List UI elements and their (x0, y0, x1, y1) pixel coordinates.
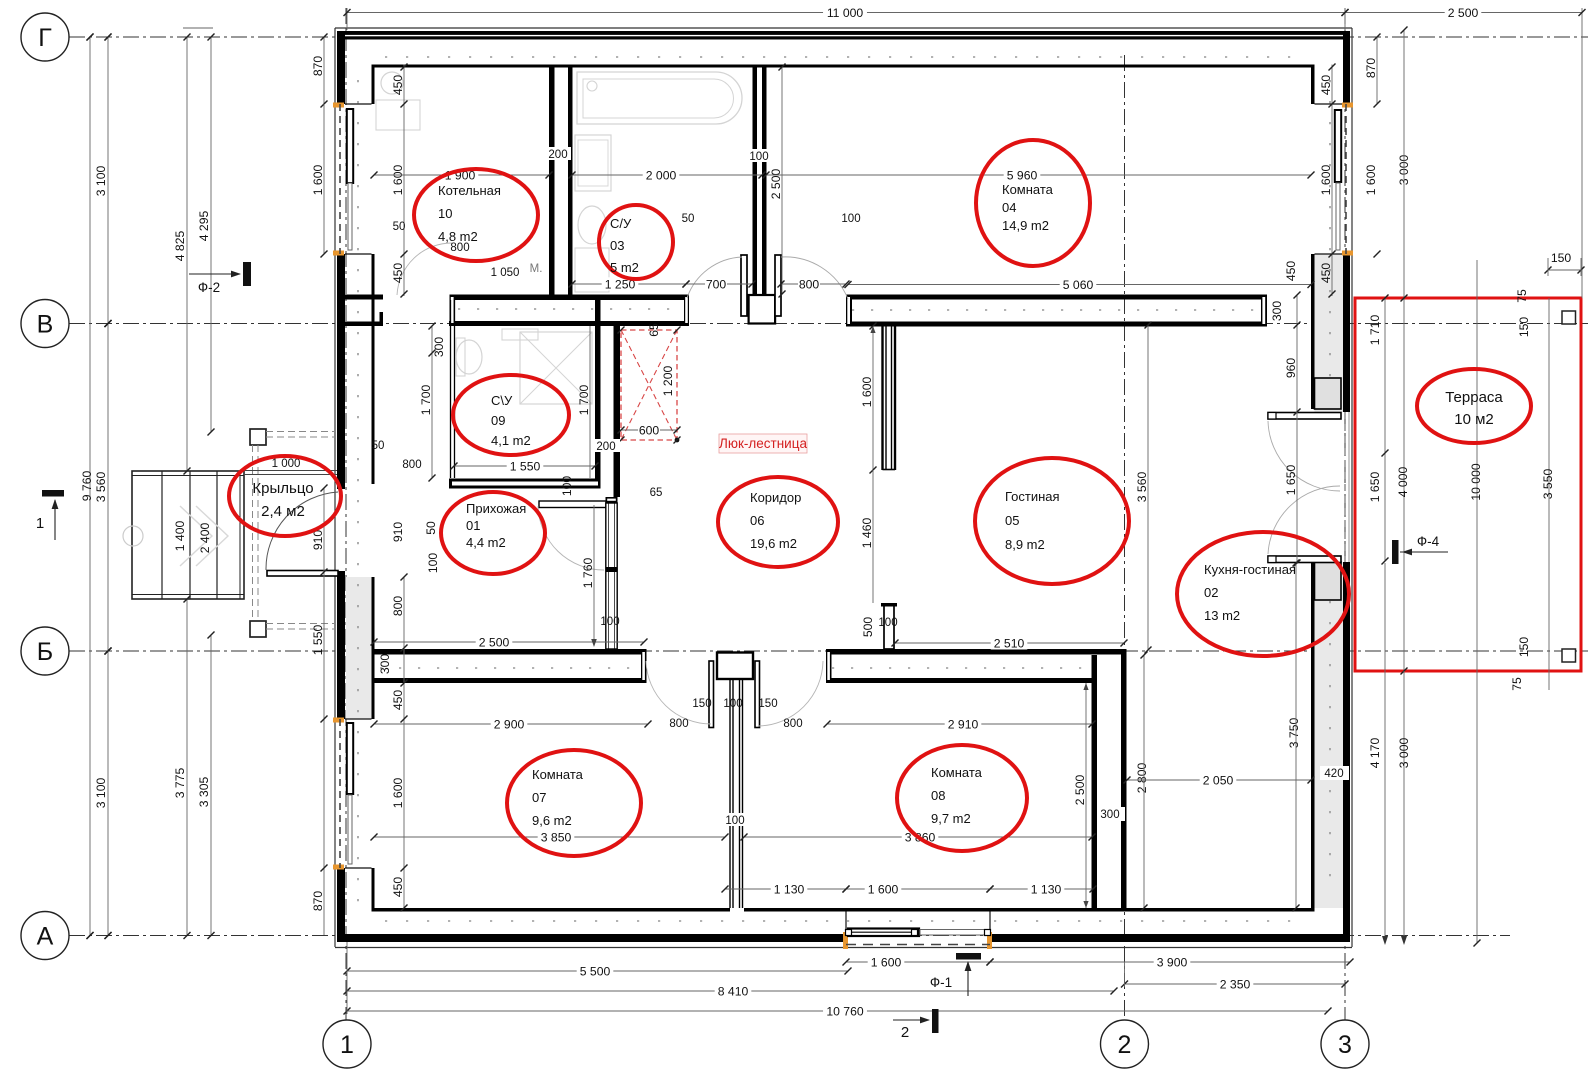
svg-text:3 850: 3 850 (541, 831, 572, 845)
svg-text:Гостиная: Гостиная (1005, 489, 1060, 504)
svg-text:02: 02 (1204, 585, 1218, 600)
svg-text:С\У: С\У (491, 393, 513, 408)
svg-text:М.: М. (530, 263, 543, 275)
svg-text:Терраса: Терраса (1445, 389, 1503, 406)
svg-text:2 500: 2 500 (1073, 775, 1087, 806)
svg-text:75: 75 (1515, 289, 1529, 303)
svg-text:06: 06 (750, 513, 764, 528)
svg-text:5 500: 5 500 (580, 965, 611, 979)
svg-text:100: 100 (841, 213, 860, 225)
svg-text:100: 100 (878, 617, 897, 629)
svg-text:13 m2: 13 m2 (1204, 608, 1240, 623)
svg-text:800: 800 (783, 718, 802, 730)
svg-text:3 560: 3 560 (94, 472, 108, 503)
svg-text:Прихожая: Прихожая (466, 501, 526, 516)
svg-text:Кухня-гостиная: Кухня-гостиная (1204, 562, 1296, 577)
svg-text:2 800: 2 800 (1135, 763, 1149, 794)
svg-text:1 600: 1 600 (871, 956, 902, 970)
svg-text:14,9 m2: 14,9 m2 (1002, 218, 1049, 233)
svg-text:Г: Г (38, 24, 52, 52)
svg-text:1 000: 1 000 (272, 458, 301, 470)
svg-text:50: 50 (424, 521, 438, 535)
svg-text:2 900: 2 900 (494, 718, 525, 732)
svg-text:5 960: 5 960 (1007, 169, 1038, 183)
svg-text:1 650: 1 650 (1284, 465, 1298, 496)
svg-text:300: 300 (1100, 809, 1119, 821)
svg-text:150: 150 (758, 698, 777, 710)
svg-text:100: 100 (426, 553, 440, 574)
svg-text:2: 2 (1118, 1031, 1132, 1059)
svg-text:07: 07 (532, 790, 546, 805)
svg-text:5 060: 5 060 (1063, 278, 1094, 292)
svg-text:150: 150 (692, 698, 711, 710)
svg-text:4,8 m2: 4,8 m2 (438, 229, 478, 244)
svg-text:2 500: 2 500 (1448, 6, 1479, 20)
svg-text:910: 910 (391, 522, 405, 543)
svg-text:Котельная: Котельная (438, 183, 501, 198)
svg-text:10 000: 10 000 (1469, 463, 1483, 500)
svg-text:450: 450 (1319, 263, 1333, 284)
svg-text:4 000: 4 000 (1396, 467, 1410, 498)
svg-text:03: 03 (610, 238, 624, 253)
svg-text:1 600: 1 600 (860, 377, 874, 408)
svg-text:870: 870 (311, 56, 325, 77)
svg-text:870: 870 (311, 891, 325, 912)
svg-text:150: 150 (1517, 317, 1531, 338)
svg-text:08: 08 (931, 788, 945, 803)
svg-text:Комната: Комната (1002, 182, 1054, 197)
svg-text:1 600: 1 600 (868, 883, 899, 897)
svg-text:8 410: 8 410 (718, 985, 749, 999)
svg-text:9,7 m2: 9,7 m2 (931, 811, 971, 826)
svg-text:1 600: 1 600 (391, 165, 405, 196)
svg-text:8,9 m2: 8,9 m2 (1005, 537, 1045, 552)
svg-text:1 760: 1 760 (581, 558, 595, 589)
svg-text:100: 100 (723, 698, 742, 710)
svg-text:100: 100 (749, 151, 768, 163)
svg-text:100: 100 (725, 815, 744, 827)
svg-text:4 170: 4 170 (1368, 738, 1382, 769)
svg-text:2: 2 (901, 1024, 909, 1041)
svg-text:4,4 m2: 4,4 m2 (466, 535, 506, 550)
svg-text:1 550: 1 550 (510, 460, 541, 474)
svg-text:1 130: 1 130 (774, 883, 805, 897)
svg-text:50: 50 (372, 440, 385, 452)
svg-text:150: 150 (1517, 637, 1531, 658)
svg-text:450: 450 (391, 263, 405, 284)
svg-text:450: 450 (391, 690, 405, 711)
svg-text:11 000: 11 000 (827, 6, 864, 20)
svg-text:300: 300 (1270, 301, 1284, 322)
svg-text:С/У: С/У (610, 216, 632, 231)
svg-text:4 295: 4 295 (197, 211, 211, 242)
svg-text:65: 65 (647, 323, 661, 337)
svg-text:3 900: 3 900 (1157, 956, 1188, 970)
svg-text:100: 100 (600, 616, 619, 628)
svg-text:Коридор: Коридор (750, 490, 801, 505)
svg-text:2 400: 2 400 (198, 523, 212, 554)
svg-text:5 m2: 5 m2 (610, 260, 639, 275)
svg-text:04: 04 (1002, 200, 1016, 215)
svg-text:450: 450 (391, 877, 405, 898)
svg-text:300: 300 (378, 654, 392, 675)
svg-text:1 460: 1 460 (860, 518, 874, 549)
svg-text:700: 700 (706, 278, 727, 292)
svg-text:800: 800 (669, 718, 688, 730)
svg-text:150: 150 (1551, 251, 1572, 265)
svg-text:75: 75 (1510, 677, 1524, 691)
svg-text:Комната: Комната (931, 765, 983, 780)
svg-text:960: 960 (1284, 358, 1298, 379)
svg-text:1: 1 (340, 1031, 354, 1059)
svg-text:1 600: 1 600 (391, 778, 405, 809)
svg-text:200: 200 (548, 149, 567, 161)
svg-text:1 650: 1 650 (1368, 472, 1382, 503)
svg-text:2 500: 2 500 (479, 636, 510, 650)
svg-text:09: 09 (491, 413, 505, 428)
svg-text:1 700: 1 700 (577, 385, 591, 416)
svg-text:01: 01 (466, 518, 480, 533)
svg-text:450: 450 (1284, 261, 1298, 282)
svg-text:Крыльцо: Крыльцо (252, 480, 313, 497)
svg-text:9 760: 9 760 (80, 471, 94, 502)
svg-text:420: 420 (1324, 768, 1343, 780)
svg-text:1 400: 1 400 (173, 521, 187, 552)
svg-text:2,4 м2: 2,4 м2 (261, 503, 305, 520)
svg-text:1 550: 1 550 (311, 625, 325, 656)
svg-text:1 600: 1 600 (311, 165, 325, 196)
svg-text:4 825: 4 825 (173, 231, 187, 262)
svg-text:4,1 m2: 4,1 m2 (491, 433, 531, 448)
svg-text:3 775: 3 775 (173, 768, 187, 799)
svg-text:800: 800 (799, 278, 820, 292)
svg-text:50: 50 (393, 221, 406, 233)
svg-text:2 500: 2 500 (769, 169, 783, 200)
svg-text:65: 65 (650, 487, 663, 499)
svg-text:450: 450 (391, 75, 405, 96)
svg-text:3 550: 3 550 (1541, 469, 1555, 500)
svg-text:300: 300 (432, 337, 446, 358)
svg-text:50: 50 (682, 213, 695, 225)
svg-text:1 700: 1 700 (419, 385, 433, 416)
svg-text:200: 200 (596, 441, 615, 453)
svg-text:2 000: 2 000 (646, 169, 677, 183)
svg-text:100: 100 (560, 476, 574, 497)
svg-text:Ф-2: Ф-2 (198, 280, 220, 295)
svg-text:3 560: 3 560 (1135, 472, 1149, 503)
svg-text:10: 10 (438, 206, 452, 221)
svg-text:Комната: Комната (532, 767, 584, 782)
svg-text:Б: Б (37, 638, 53, 666)
svg-text:3: 3 (1338, 1031, 1352, 1059)
svg-text:450: 450 (1319, 75, 1333, 96)
svg-text:3 000: 3 000 (1397, 738, 1411, 769)
svg-text:В: В (37, 311, 54, 339)
svg-text:19,6 m2: 19,6 m2 (750, 536, 797, 551)
svg-text:2 510: 2 510 (994, 637, 1025, 651)
svg-text:3 100: 3 100 (94, 778, 108, 809)
svg-text:3 305: 3 305 (197, 777, 211, 808)
svg-text:10 м2: 10 м2 (1454, 411, 1494, 428)
svg-text:9,6 m2: 9,6 m2 (532, 813, 572, 828)
svg-text:10 760: 10 760 (826, 1005, 863, 1019)
svg-text:800: 800 (391, 596, 405, 617)
svg-text:1 050: 1 050 (491, 267, 520, 279)
svg-text:1: 1 (36, 515, 44, 532)
svg-text:500: 500 (861, 617, 875, 638)
svg-text:Люк-лестница: Люк-лестница (719, 436, 807, 451)
svg-text:05: 05 (1005, 513, 1019, 528)
svg-text:А: А (37, 923, 54, 951)
svg-text:2 050: 2 050 (1203, 774, 1234, 788)
svg-text:800: 800 (402, 459, 421, 471)
svg-text:Ф-4: Ф-4 (1417, 534, 1440, 549)
svg-text:1 130: 1 130 (1031, 883, 1062, 897)
svg-text:1 600: 1 600 (1319, 165, 1333, 196)
svg-text:1 710: 1 710 (1368, 315, 1382, 346)
svg-text:2 350: 2 350 (1220, 978, 1251, 992)
svg-text:2 910: 2 910 (948, 718, 979, 732)
svg-text:1 200: 1 200 (661, 366, 675, 397)
svg-text:3 750: 3 750 (1287, 718, 1301, 749)
svg-text:3 100: 3 100 (94, 166, 108, 197)
svg-text:600: 600 (639, 424, 660, 438)
svg-text:1 600: 1 600 (1364, 165, 1378, 196)
svg-text:870: 870 (1364, 58, 1378, 79)
svg-text:Ф-1: Ф-1 (930, 975, 952, 990)
